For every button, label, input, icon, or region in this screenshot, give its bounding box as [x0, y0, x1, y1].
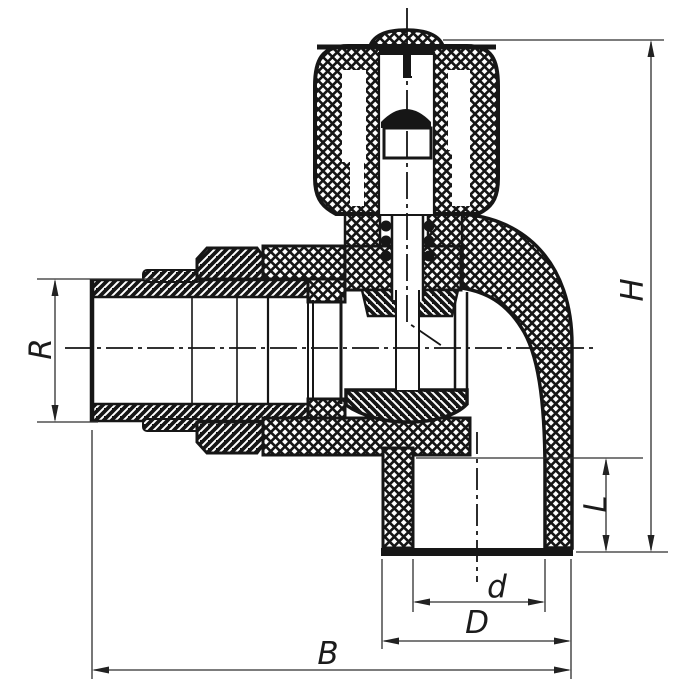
- thread-ridge-top: [143, 270, 201, 282]
- handwheel-slot: [342, 70, 366, 162]
- dim-label-B: B: [317, 636, 338, 672]
- body-inlet-arm-top: [263, 246, 345, 279]
- socket-left-wall: [383, 448, 413, 548]
- union-nut-top: [197, 248, 265, 279]
- handwheel-slot: [448, 70, 470, 150]
- technical-drawing-canvas: R H L d D B: [0, 0, 700, 700]
- valve-cross-section-drawing: R H L d D B: [0, 0, 700, 700]
- dim-label-H: H: [615, 278, 651, 301]
- thread-ridge-bottom: [143, 419, 201, 431]
- body-under-chamber: [263, 418, 470, 455]
- thread-band-top: [92, 280, 310, 297]
- dim-label-d: d: [487, 569, 507, 605]
- dim-label-R: R: [23, 338, 59, 360]
- dim-label-D: D: [465, 605, 489, 641]
- union-nut-bottom: [197, 422, 265, 453]
- dim-label-L: L: [578, 495, 614, 512]
- handwheel-slot: [452, 148, 470, 206]
- handwheel-slot: [350, 162, 364, 206]
- male-thread-tailpiece: [92, 270, 310, 431]
